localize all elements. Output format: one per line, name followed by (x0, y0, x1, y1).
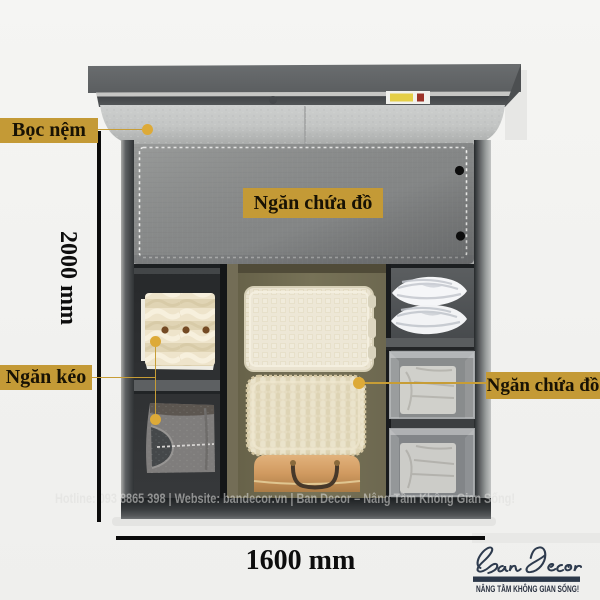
svg-text:Hotline: 093 8865 398 | Websit: Hotline: 093 8865 398 | Website: bandeco… (55, 490, 515, 506)
svg-text:NÂNG TẦM KHÔNG GIAN SỐNG!: NÂNG TẦM KHÔNG GIAN SỐNG! (476, 583, 579, 595)
